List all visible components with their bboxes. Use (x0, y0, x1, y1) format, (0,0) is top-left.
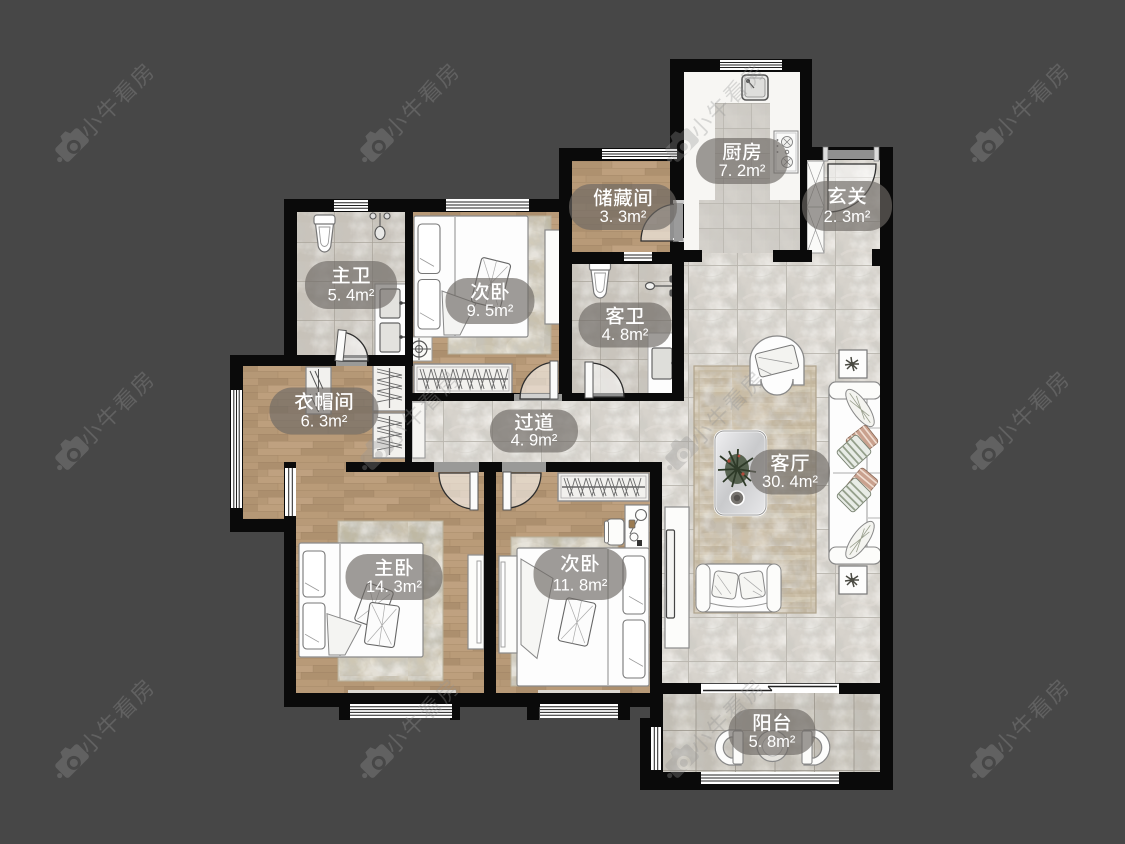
svg-text:6. 3m²: 6. 3m² (301, 412, 348, 430)
svg-text:4. 8m²: 4. 8m² (602, 326, 649, 344)
svg-text:4. 9m²: 4. 9m² (511, 432, 558, 450)
svg-text:5. 4m²: 5. 4m² (328, 287, 375, 305)
svg-text:3. 3m²: 3. 3m² (600, 208, 647, 226)
svg-text:14. 3m²: 14. 3m² (366, 578, 422, 596)
svg-text:2. 3m²: 2. 3m² (824, 208, 871, 226)
svg-text:11. 8m²: 11. 8m² (553, 576, 608, 594)
svg-text:30. 4m²: 30. 4m² (762, 473, 818, 491)
svg-text:9. 5m²: 9. 5m² (467, 302, 514, 320)
svg-text:7. 2m²: 7. 2m² (719, 162, 766, 180)
svg-text:5. 8m²: 5. 8m² (749, 733, 796, 751)
